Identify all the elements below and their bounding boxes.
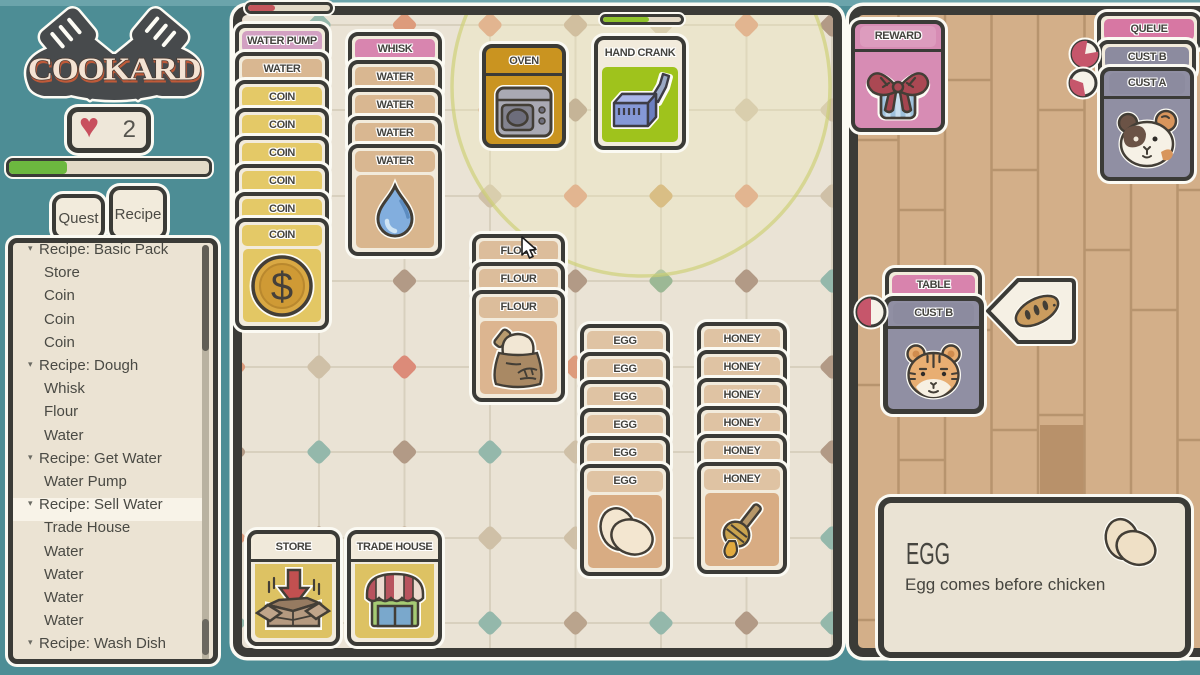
svg-text:$: $ — [271, 265, 293, 309]
svg-text:COOKARD: COOKARD — [28, 52, 201, 87]
